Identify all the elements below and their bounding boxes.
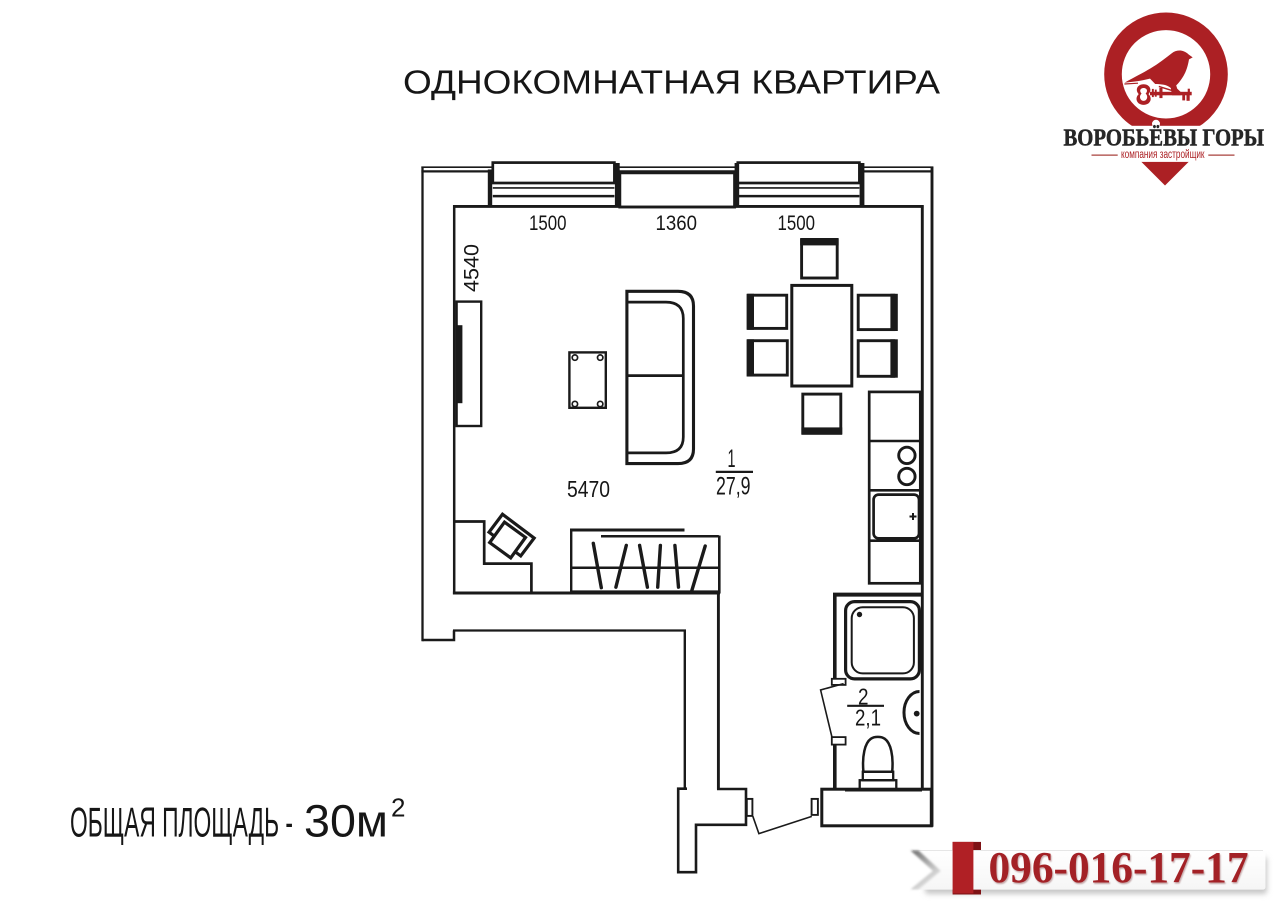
svg-text:ВОРОБЬЁВЫ ГОРЫ: ВОРОБЬЁВЫ ГОРЫ <box>1064 125 1265 152</box>
svg-text:ОБЩАЯ ПЛОЩАДЬ -: ОБЩАЯ ПЛОЩАДЬ - <box>70 798 293 845</box>
svg-text:компания застройщик: компания застройщик <box>1121 149 1205 161</box>
svg-text:5470: 5470 <box>567 476 610 502</box>
svg-text:30м: 30м <box>304 796 388 847</box>
svg-text:2: 2 <box>391 793 405 823</box>
svg-text:27,9: 27,9 <box>716 473 751 501</box>
svg-text:ОДНОКОМНАТНАЯ КВАРТИРА: ОДНОКОМНАТНАЯ КВАРТИРА <box>403 64 940 101</box>
svg-text:096-016-17-17: 096-016-17-17 <box>989 843 1249 892</box>
svg-text:1: 1 <box>728 445 736 473</box>
svg-text:2,1: 2,1 <box>855 705 881 731</box>
svg-text:1500: 1500 <box>778 211 816 235</box>
svg-text:1360: 1360 <box>656 211 698 235</box>
svg-text:1500: 1500 <box>529 211 567 235</box>
svg-text:4540: 4540 <box>460 244 484 292</box>
